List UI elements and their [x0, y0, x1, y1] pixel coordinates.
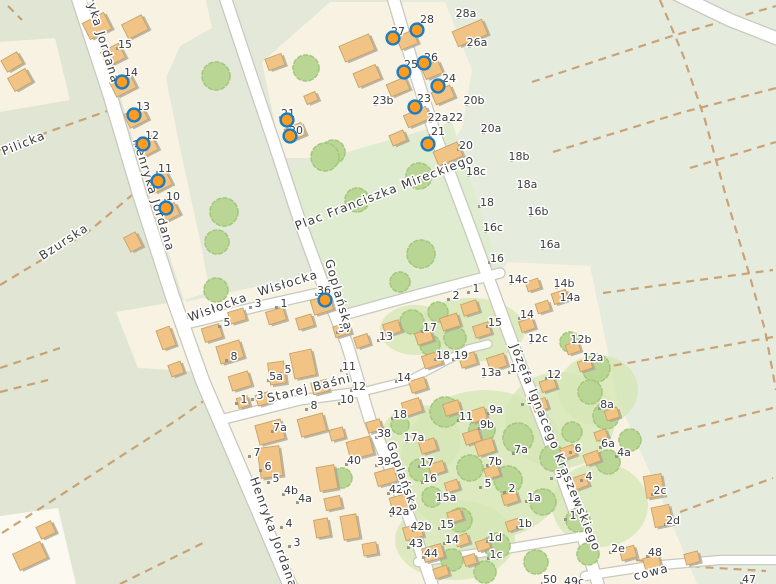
- poi-marker[interactable]: [409, 101, 422, 114]
- house-number: 11: [459, 410, 473, 423]
- tree-icon: [578, 380, 602, 404]
- house-number: 5: [285, 363, 292, 376]
- house-number: 21: [431, 125, 445, 138]
- address-dot: [569, 451, 572, 454]
- tree-icon: [205, 230, 229, 254]
- house-number: 18: [393, 408, 407, 421]
- house-number: 3: [257, 389, 264, 402]
- house-number: 15a: [436, 491, 457, 504]
- building-body: [314, 518, 331, 538]
- house-number: 48: [648, 546, 662, 559]
- address-dot: [288, 545, 291, 548]
- house-number: 4a: [617, 446, 631, 459]
- house-number: 18: [436, 349, 450, 362]
- poi-marker[interactable]: [398, 66, 411, 79]
- address-dot: [550, 477, 553, 480]
- address-dot: [305, 408, 308, 411]
- house-number: 1: [241, 393, 248, 406]
- house-number: 14b: [554, 277, 575, 290]
- house-number: 2d: [666, 514, 680, 527]
- address-dot: [259, 469, 262, 472]
- house-number: 2e: [611, 542, 625, 555]
- house-number: 13: [379, 330, 393, 343]
- house-number: 4a: [298, 492, 312, 505]
- house-number: 7a: [514, 443, 528, 456]
- house-number: 50: [543, 573, 557, 584]
- address-dot: [249, 306, 252, 309]
- house-number: 20b: [464, 94, 485, 107]
- house-number: 1d: [488, 531, 502, 544]
- house-number: 14: [397, 371, 411, 384]
- house-number: 1: [281, 297, 288, 310]
- house-number: 23b: [373, 94, 394, 107]
- poi-marker[interactable]: [128, 109, 141, 122]
- house-number: 6a: [601, 437, 615, 450]
- address-dot: [521, 403, 524, 406]
- house-number: 15: [118, 38, 132, 51]
- house-number: 22a: [428, 111, 449, 124]
- house-number: 9b: [480, 418, 494, 431]
- house-number: 8: [231, 350, 238, 363]
- house-number: 17: [420, 456, 434, 469]
- house-number: 40: [347, 454, 361, 467]
- house-number: 14: [445, 533, 459, 546]
- poi-marker[interactable]: [284, 130, 297, 143]
- house-number: 44: [424, 547, 438, 560]
- tree-icon: [210, 198, 238, 226]
- house-number: 42b: [411, 520, 432, 533]
- house-number: 1: [473, 282, 480, 295]
- house-number: 43: [409, 537, 423, 550]
- house-number: 12b: [571, 333, 592, 346]
- house-number: 2c: [653, 484, 666, 497]
- address-dot: [479, 486, 482, 489]
- house-number: 26a: [467, 36, 488, 49]
- poi-marker[interactable]: [422, 138, 435, 151]
- address-dot: [503, 491, 506, 494]
- house-number: 15: [488, 316, 502, 329]
- address-dot: [248, 455, 251, 458]
- house-number: 8a: [600, 398, 614, 411]
- house-number: 6: [575, 442, 582, 455]
- house-number: 47: [742, 573, 756, 584]
- house-number: 28: [420, 13, 434, 26]
- house-number: 38: [377, 427, 391, 440]
- house-number: 5: [485, 477, 492, 490]
- tree-icon: [293, 55, 319, 81]
- building-body: [362, 542, 378, 556]
- poi-marker[interactable]: [411, 24, 424, 37]
- house-number: 5: [273, 472, 280, 485]
- house-number: 4: [286, 517, 293, 530]
- poi-marker[interactable]: [432, 80, 445, 93]
- building-body: [290, 349, 317, 379]
- house-number: 17: [423, 321, 437, 334]
- tree-icon: [311, 143, 339, 171]
- poi-marker[interactable]: [281, 114, 294, 127]
- house-number: 2: [453, 289, 460, 302]
- poi-marker[interactable]: [387, 32, 400, 45]
- house-number: 18: [480, 196, 494, 209]
- house-number: 1a: [527, 491, 541, 504]
- poi-marker[interactable]: [319, 294, 332, 307]
- poi-marker[interactable]: [160, 202, 173, 215]
- house-number: 7a: [273, 421, 287, 434]
- poi-marker[interactable]: [116, 76, 129, 89]
- tree-icon: [457, 455, 483, 481]
- house-number: 5: [224, 316, 231, 329]
- tree-icon: [400, 310, 424, 334]
- house-number: 17a: [404, 431, 425, 444]
- house-number: 1c: [489, 548, 502, 561]
- address-dot: [267, 481, 270, 484]
- house-number: 14a: [560, 291, 581, 304]
- house-number: 5a: [269, 370, 283, 383]
- tree-icon: [562, 422, 582, 442]
- address-dot: [235, 402, 238, 405]
- house-number: 9a: [489, 403, 503, 416]
- house-number: 1b: [518, 517, 532, 530]
- poi-marker[interactable]: [137, 138, 150, 151]
- house-number: 11: [158, 162, 172, 175]
- house-number: 16a: [540, 238, 561, 251]
- poi-marker[interactable]: [418, 57, 431, 70]
- house-number: 18a: [517, 178, 538, 191]
- house-number: 20: [459, 139, 473, 152]
- house-number: 3: [294, 536, 301, 549]
- house-number: 12a: [583, 351, 604, 364]
- house-number: 13a: [481, 366, 502, 379]
- address-dot: [564, 518, 567, 521]
- house-number: 16: [423, 472, 437, 485]
- map-svg: 151413121110212028a282726a26252423b2322a…: [0, 0, 776, 584]
- house-number: 18b: [509, 150, 530, 163]
- house-number: 7b: [488, 455, 502, 468]
- house-number: 12c: [528, 332, 548, 345]
- house-number: 12: [352, 380, 366, 393]
- address-dot: [447, 298, 450, 301]
- house-number: 12: [547, 368, 561, 381]
- tree-icon: [407, 240, 435, 268]
- house-number: 15: [440, 518, 454, 531]
- tree-icon: [524, 550, 548, 574]
- building-body: [316, 465, 338, 492]
- house-number: 4b: [284, 484, 298, 497]
- house-number: 16b: [528, 205, 549, 218]
- house-number: 16c: [483, 221, 503, 234]
- house-number: 49c: [564, 575, 584, 584]
- house-number: 6: [265, 460, 272, 473]
- house-number: 8: [311, 399, 318, 412]
- house-number: 3: [255, 297, 262, 310]
- address-dot: [225, 359, 228, 362]
- house-number: 2: [509, 482, 516, 495]
- tree-icon: [390, 272, 410, 292]
- house-number: 42a: [389, 505, 410, 518]
- address-dot: [218, 325, 221, 328]
- house-number: 22: [449, 111, 463, 124]
- poi-marker[interactable]: [152, 175, 165, 188]
- house-number: 14: [520, 308, 534, 321]
- house-number: 7: [254, 446, 261, 459]
- building: [362, 541, 380, 558]
- house-number: 4: [586, 470, 593, 483]
- address-dot: [580, 479, 583, 482]
- house-number: 14c: [508, 273, 528, 286]
- address-dot: [467, 291, 470, 294]
- house-number: 10: [340, 393, 354, 406]
- map-canvas[interactable]: 151413121110212028a282726a26252423b2322a…: [0, 0, 776, 584]
- address-dot: [251, 398, 254, 401]
- house-number: 16: [490, 252, 504, 265]
- house-number: 20a: [481, 122, 502, 135]
- house-number: 19: [454, 349, 468, 362]
- address-dot: [275, 306, 278, 309]
- house-number: 28a: [456, 7, 477, 20]
- tree-icon: [202, 62, 230, 90]
